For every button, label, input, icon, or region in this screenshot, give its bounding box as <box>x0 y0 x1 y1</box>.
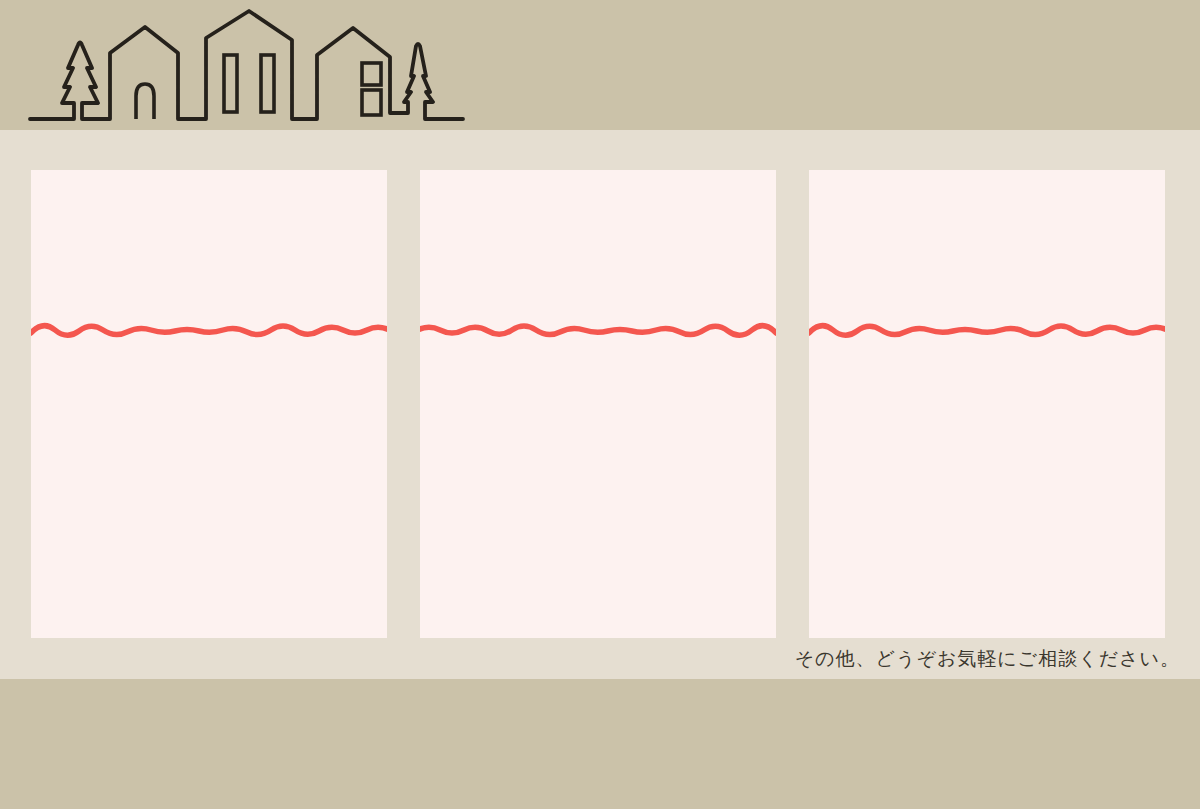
town-skyline-illustration <box>0 0 470 130</box>
wavy-divider-line <box>809 313 1165 349</box>
header-band <box>0 0 1200 130</box>
flyer-page: その他、どうぞお気軽にご相談ください。 <box>0 0 1200 809</box>
wavy-divider-line <box>31 313 387 349</box>
consultation-note: その他、どうぞお気軽にご相談ください。 <box>795 646 1180 672</box>
content-card-1 <box>31 170 387 638</box>
wavy-divider-line <box>420 313 776 349</box>
content-card-2 <box>420 170 776 638</box>
content-card-3 <box>809 170 1165 638</box>
footer-band <box>0 679 1200 809</box>
cards-row <box>31 170 1165 638</box>
